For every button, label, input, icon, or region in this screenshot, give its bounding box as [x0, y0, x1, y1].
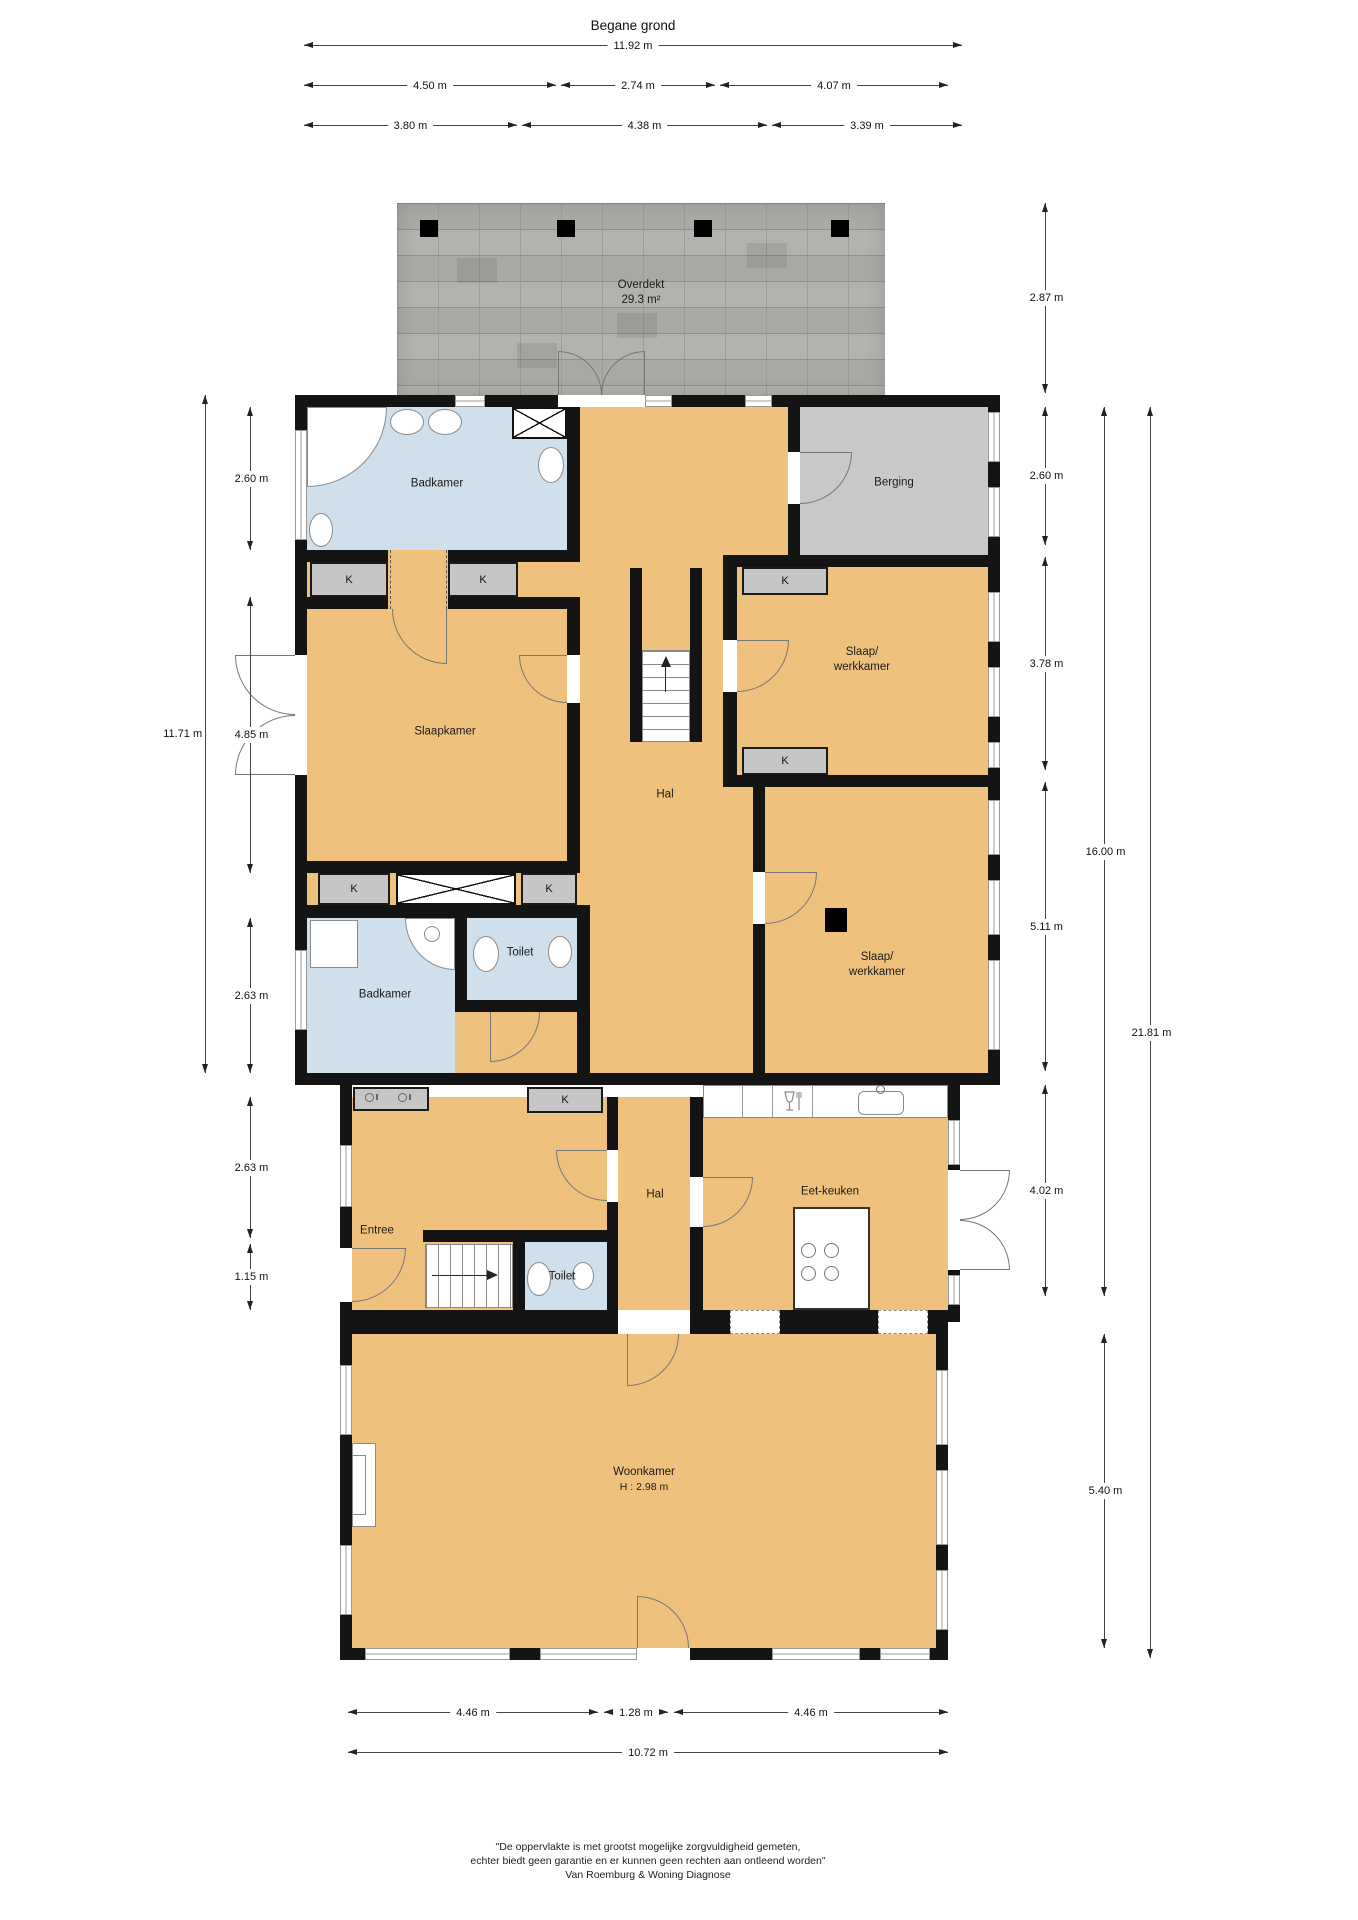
dim-bottom-a2: 1.28 m	[604, 1712, 668, 1713]
window	[295, 430, 307, 540]
toilet-icon	[538, 447, 564, 483]
roof-post	[420, 220, 438, 237]
wall	[307, 905, 590, 918]
dashed-line	[446, 550, 447, 609]
closet-label: K	[479, 574, 486, 586]
door-opening	[723, 640, 737, 692]
door-opening	[637, 1648, 690, 1660]
roof-post	[557, 220, 575, 237]
dim-right-total: 21.81 m	[1150, 407, 1151, 1658]
closet-label: K	[350, 883, 357, 895]
wall	[607, 1097, 618, 1310]
wall	[455, 1000, 590, 1012]
closet: K	[448, 562, 518, 597]
window	[988, 880, 1000, 935]
dim-left-total-upper: 11.71 m	[205, 395, 206, 1073]
dim-right-keuken: 4.02 m	[1045, 1085, 1046, 1296]
dim-bottom-a3: 4.46 m	[674, 1712, 948, 1713]
window	[340, 1545, 352, 1615]
floor-plan: Begane grond 11.92 m 4.50 m 2.74 m 4.07 …	[0, 0, 1358, 1920]
dim-top-b2: 4.38 m	[522, 125, 767, 126]
wall	[307, 597, 388, 609]
window	[645, 395, 672, 407]
window	[988, 412, 1000, 462]
dim-right-woonkamer: 5.40 m	[1104, 1334, 1105, 1648]
sink-icon	[548, 936, 572, 968]
roof-tile	[617, 313, 657, 338]
room-label-woonkamer: WoonkamerH : 2.98 m	[613, 1465, 675, 1495]
window	[745, 395, 772, 407]
wall	[448, 597, 580, 609]
closet-label: K	[345, 574, 352, 586]
fireplace-inner	[352, 1455, 366, 1515]
dim-top-a2: 2.74 m	[561, 85, 715, 86]
staircase-entree	[425, 1244, 513, 1308]
dim-left-badkamer-2: 2.63 m	[250, 918, 251, 1073]
dim-left-slaapkamer: 4.85 m	[250, 597, 251, 873]
toilet-icon	[309, 513, 333, 547]
wall	[448, 550, 580, 562]
door-opening-garden	[295, 655, 307, 775]
window	[880, 1648, 930, 1660]
closet: K	[527, 1087, 603, 1113]
closet-label: K	[545, 883, 552, 895]
dishwasher-icon	[779, 1088, 807, 1116]
closet: K	[310, 562, 388, 597]
wall	[307, 861, 580, 873]
dim-top-total: 11.92 m	[304, 45, 962, 46]
stove-burner-icon	[801, 1266, 816, 1281]
stairs-direction-arrow	[661, 656, 671, 667]
stair-rail	[630, 568, 642, 742]
room-label-overdekt: Overdekt 29.3 m²	[618, 278, 665, 308]
room-label-berging: Berging	[874, 476, 914, 491]
roof-tile	[457, 258, 497, 283]
door-opening	[788, 452, 800, 504]
dim-left-badkamer: 2.60 m	[250, 407, 251, 550]
kitchen-island	[793, 1207, 870, 1310]
dim-right-16m: 16.00 m	[1104, 407, 1105, 1296]
stairs-direction-arrow	[432, 1275, 488, 1276]
stairs-direction-arrow	[487, 1270, 498, 1280]
window	[540, 1648, 637, 1660]
wall	[567, 407, 580, 557]
room-label-badkamer-1: Badkamer	[411, 477, 463, 492]
faucet-icon	[409, 1094, 411, 1100]
window	[988, 667, 1000, 717]
dim-right-berging: 2.60 m	[1045, 407, 1046, 545]
closet: K	[742, 567, 828, 595]
door-opening	[567, 655, 580, 703]
room-label-slaapkamer: Slaapkamer	[414, 725, 475, 740]
disclaimer-line-3: Van Roemburg & Woning Diagnose	[470, 1868, 825, 1882]
room-label-badkamer-2: Badkamer	[359, 988, 411, 1003]
roof-post	[831, 220, 849, 237]
closet-label: K	[781, 575, 788, 587]
stove-burner-icon	[824, 1266, 839, 1281]
wall	[577, 905, 590, 1073]
room-label-toilet-1: Toilet	[507, 946, 534, 961]
window	[936, 1370, 948, 1445]
closet-label: K	[561, 1094, 568, 1106]
disclaimer-line-1: "De oppervlakte is met grootst mogelijke…	[470, 1840, 825, 1854]
wall	[423, 1230, 607, 1242]
faucet-icon	[876, 1085, 885, 1094]
window	[988, 960, 1000, 1050]
void-closet	[396, 873, 516, 905]
wall	[567, 597, 580, 873]
window	[948, 1275, 960, 1305]
window	[936, 1470, 948, 1545]
dim-top-a3: 4.07 m	[720, 85, 948, 86]
roof-tile	[747, 243, 787, 268]
door-opening	[618, 1310, 690, 1334]
kitchen-sink-icon	[858, 1091, 904, 1115]
dashed-line	[390, 550, 391, 609]
room-label-eet-keuken: Eet-keuken	[801, 1185, 859, 1200]
roof-tile	[517, 343, 557, 368]
faucet-icon	[365, 1093, 374, 1102]
dim-bottom-a1: 4.46 m	[348, 1712, 598, 1713]
window	[295, 950, 307, 1030]
door-opening-kitchen-terrace	[948, 1170, 960, 1270]
dim-left-stairs: 1.15 m	[250, 1244, 251, 1310]
door-opening	[753, 872, 765, 924]
window	[988, 487, 1000, 537]
stove-burner-icon	[801, 1243, 816, 1258]
stairs-direction-arrow	[665, 666, 666, 692]
stove-burner-icon	[824, 1243, 839, 1258]
dim-bottom-total: 10.72 m	[348, 1752, 948, 1753]
chimney	[825, 908, 847, 932]
dim-right-sw1: 3.78 m	[1045, 557, 1046, 770]
dim-right-terrace: 2.87 m	[1045, 203, 1046, 393]
door-swing	[235, 655, 295, 715]
faucet-icon	[398, 1093, 407, 1102]
closet: K	[318, 873, 390, 905]
window	[948, 1120, 960, 1165]
front-door-opening	[340, 1248, 352, 1302]
room-label-hal-lower: Hal	[646, 1188, 663, 1203]
pass-through	[730, 1310, 780, 1334]
door-opening-terrace	[558, 395, 645, 407]
window	[988, 592, 1000, 642]
dim-top-a1: 4.50 m	[304, 85, 556, 86]
door-opening	[690, 1177, 703, 1227]
kitchen-counter	[703, 1085, 948, 1118]
disclaimer-line-2: echter biedt geen garantie en er kunnen …	[470, 1854, 825, 1868]
window	[340, 1365, 352, 1435]
wall	[455, 918, 467, 1012]
room-label-toilet-2: Toilet	[549, 1270, 576, 1285]
window	[365, 1648, 510, 1660]
shower-icon	[310, 920, 358, 968]
room-label-hal-upper: Hal	[656, 788, 673, 803]
dim-left-entree: 2.63 m	[250, 1097, 251, 1238]
wall	[723, 775, 1000, 787]
counter-divider	[772, 1086, 773, 1117]
window	[340, 1145, 352, 1207]
closet-label: K	[781, 755, 788, 767]
counter-divider	[812, 1086, 813, 1117]
door-swing	[235, 715, 295, 775]
page-title: Begane grond	[591, 18, 676, 33]
roof-post	[694, 220, 712, 237]
room-label-slaap-werkkamer-1: Slaap/werkkamer	[834, 645, 890, 675]
room-label-entree: Entree	[360, 1224, 394, 1239]
wall	[513, 1242, 525, 1310]
door-swing	[960, 1170, 1010, 1220]
door-opening	[607, 1150, 618, 1202]
room-label-slaap-werkkamer-2: Slaap/werkkamer	[849, 950, 905, 980]
wall	[753, 787, 765, 1073]
void-closet	[512, 407, 567, 439]
dim-top-b1: 3.80 m	[304, 125, 517, 126]
sink-icon	[428, 409, 462, 435]
door-swing	[960, 1220, 1010, 1270]
pass-through	[878, 1310, 928, 1334]
disclaimer: "De oppervlakte is met grootst mogelijke…	[470, 1840, 825, 1882]
closet: K	[521, 873, 577, 905]
window	[772, 1648, 860, 1660]
window	[455, 395, 485, 407]
drain-icon	[424, 926, 440, 942]
wall	[723, 555, 1000, 567]
dim-right-sw2: 5.11 m	[1045, 782, 1046, 1071]
window	[988, 742, 1000, 768]
wall	[295, 1073, 1000, 1085]
counter-divider	[742, 1086, 743, 1117]
window	[936, 1570, 948, 1630]
closet: K	[742, 747, 828, 775]
wall	[307, 550, 388, 562]
dim-top-b3: 3.39 m	[772, 125, 962, 126]
toilet-icon	[527, 1262, 551, 1296]
window	[988, 800, 1000, 855]
faucet-icon	[376, 1094, 378, 1100]
toilet-icon	[473, 936, 499, 972]
stair-rail	[690, 568, 702, 742]
sink-icon	[390, 409, 424, 435]
